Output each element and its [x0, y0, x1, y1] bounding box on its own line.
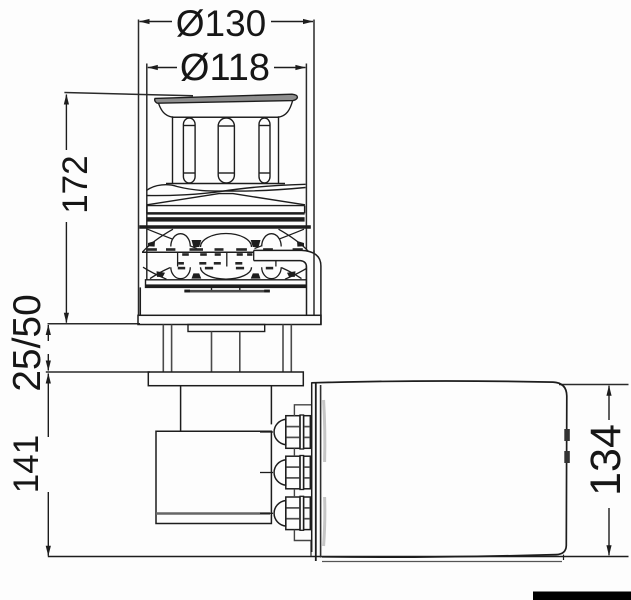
svg-text:25/50: 25/50	[6, 294, 49, 392]
svg-text:172: 172	[56, 155, 95, 213]
svg-text:Ø130: Ø130	[176, 3, 267, 44]
svg-text:Ø118: Ø118	[180, 47, 270, 89]
svg-text:134: 134	[582, 424, 630, 496]
svg-text:141: 141	[7, 435, 46, 493]
